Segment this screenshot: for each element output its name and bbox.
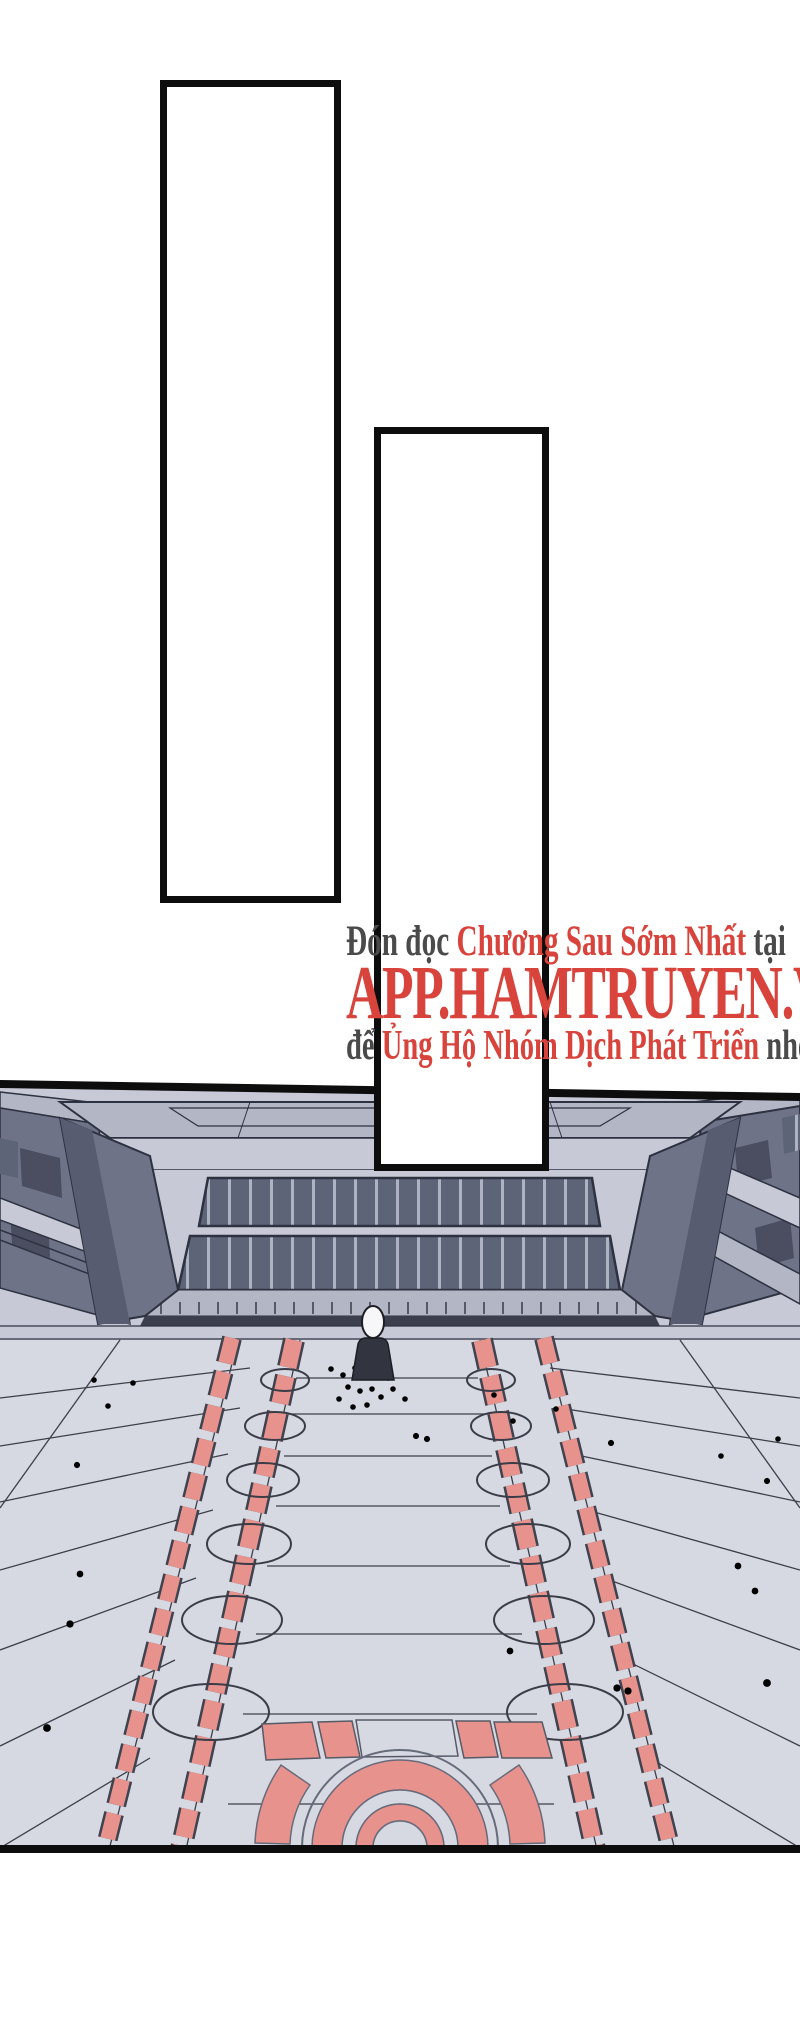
plaza-panel-illustration xyxy=(0,1078,800,1854)
comic-panel xyxy=(0,1078,800,1854)
promo-url: APP.HAMTRUYEN.VN xyxy=(346,963,754,1023)
speaker-head xyxy=(362,1306,384,1338)
promo-line3: để Ủng Hộ Nhóm Dịch Phát Triển nhé xyxy=(346,1023,754,1069)
window-strip-upper xyxy=(199,1178,600,1226)
panel-border-bottom xyxy=(0,1845,800,1853)
podium-body xyxy=(352,1338,394,1380)
promo-line3-highlight: Ủng Hộ Nhóm Dịch Phát Triển xyxy=(382,1023,759,1069)
promo-banner: Đón đọc Chương Sau Sớm Nhất tại APP.HAMT… xyxy=(250,921,800,1069)
dais-tile-row xyxy=(262,1720,552,1760)
comic-page: Đón đọc Chương Sau Sớm Nhất tại APP.HAMT… xyxy=(0,0,800,2040)
promo-line3-prefix: để xyxy=(346,1023,375,1069)
speech-bubble-left xyxy=(160,80,341,903)
promo-line3-suffix: nhé xyxy=(766,1023,800,1069)
dark-ledge xyxy=(140,1316,660,1326)
stage-strip xyxy=(0,1326,800,1340)
window-strip-lower xyxy=(178,1236,620,1290)
